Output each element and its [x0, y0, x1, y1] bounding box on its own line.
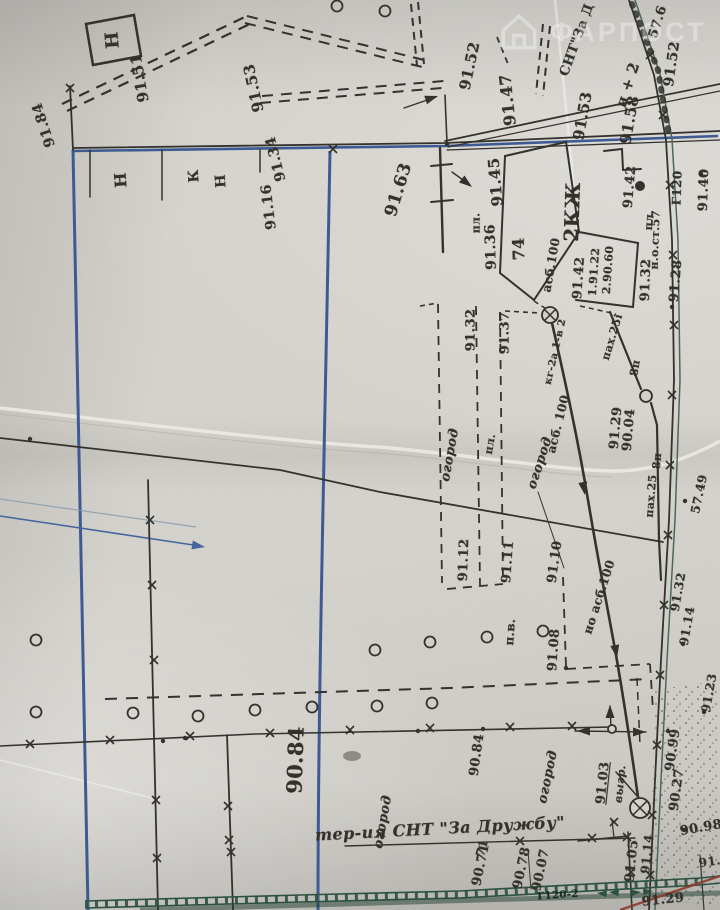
map-label: 91.42: [571, 256, 587, 300]
map-label: Г120-2: [537, 890, 579, 903]
map-label: 90.07: [530, 848, 552, 892]
map-label: 91.52: [662, 40, 682, 87]
map-label: пах.25: [644, 474, 659, 518]
map-label: но асб.100: [581, 558, 616, 635]
map-label: пл.: [643, 209, 655, 231]
map-label: 91.47: [497, 73, 518, 126]
map-label: 91.32: [465, 309, 478, 352]
map-label: 90.27: [668, 768, 687, 812]
map-label: К: [187, 169, 202, 183]
map-label: 91.53: [571, 91, 594, 142]
map-label: 91.0: [698, 853, 720, 869]
scanned-survey-map: Н91.5191.5391.52СНТ"За Дн + 257.691.5291…: [0, 0, 720, 910]
map-label: 91.23: [700, 672, 719, 713]
map-label: 91.29: [641, 891, 685, 908]
map-label: Н: [214, 174, 229, 189]
map-labels-layer: Н91.5191.5391.52СНТ"За Дн + 257.691.5291…: [0, 0, 720, 910]
map-label: огород: [525, 435, 554, 490]
map-label: 91.03: [594, 761, 611, 805]
map-label: 2КЖ: [561, 182, 583, 242]
map-label: 91.08: [546, 628, 562, 672]
map-label: 91.32: [639, 258, 653, 301]
map-label: 91.51: [128, 53, 151, 104]
map-label: 91.10: [546, 540, 565, 584]
map-label: 91.42: [622, 165, 639, 209]
map-label: огород: [536, 749, 560, 804]
map-label: 74: [511, 237, 528, 261]
map-label: Н: [103, 31, 122, 50]
map-label: выгр.: [613, 764, 628, 803]
map-label: пл.: [471, 213, 482, 234]
map-label: 91.63: [383, 161, 415, 219]
map-label: 90.04: [621, 408, 638, 452]
map-label: 1.91.22: [587, 247, 601, 296]
map-label: 91.14: [639, 834, 655, 875]
map-label: тер-ия СНТ "За Дружбу": [315, 814, 566, 843]
map-label: Н: [112, 172, 129, 189]
map-label: 91.52: [458, 40, 483, 91]
map-label: 57.6: [647, 4, 670, 40]
map-label: пл.: [483, 433, 497, 455]
map-label: 57.49: [689, 473, 709, 514]
map-label: огород: [439, 427, 461, 482]
map-label: 91.40: [697, 168, 711, 211]
map-label: 90.99: [664, 728, 683, 772]
map-label: 91.84: [30, 101, 57, 149]
map-label: 91.34: [264, 135, 289, 183]
map-label: п.в.: [503, 618, 517, 646]
map-label: 91.36: [483, 224, 499, 270]
map-label: Г120: [670, 170, 683, 205]
map-label: 91.05: [623, 839, 640, 883]
map-label: 8п: [628, 359, 642, 377]
map-label: пах.25i: [600, 313, 625, 362]
map-label: 90.84: [468, 733, 487, 777]
map-label: 8п: [651, 452, 663, 469]
map-label: 91.12: [457, 538, 471, 581]
map-label: кг-2а 1-в 2: [544, 318, 569, 386]
map-label: 91.16: [259, 183, 278, 230]
map-label: 2.90.60: [601, 245, 615, 294]
map-label: 90.84: [283, 726, 306, 794]
map-label: 91.37: [499, 312, 512, 355]
map-label: 91.53: [242, 62, 267, 113]
map-label: 91.45: [486, 157, 505, 207]
map-label: 91.28: [668, 259, 685, 303]
map-label: асб.100: [540, 237, 561, 293]
map-label: СНТ"За Д: [558, 2, 596, 78]
map-label: 91.11: [500, 540, 516, 584]
map-label: 90.98: [679, 818, 720, 838]
